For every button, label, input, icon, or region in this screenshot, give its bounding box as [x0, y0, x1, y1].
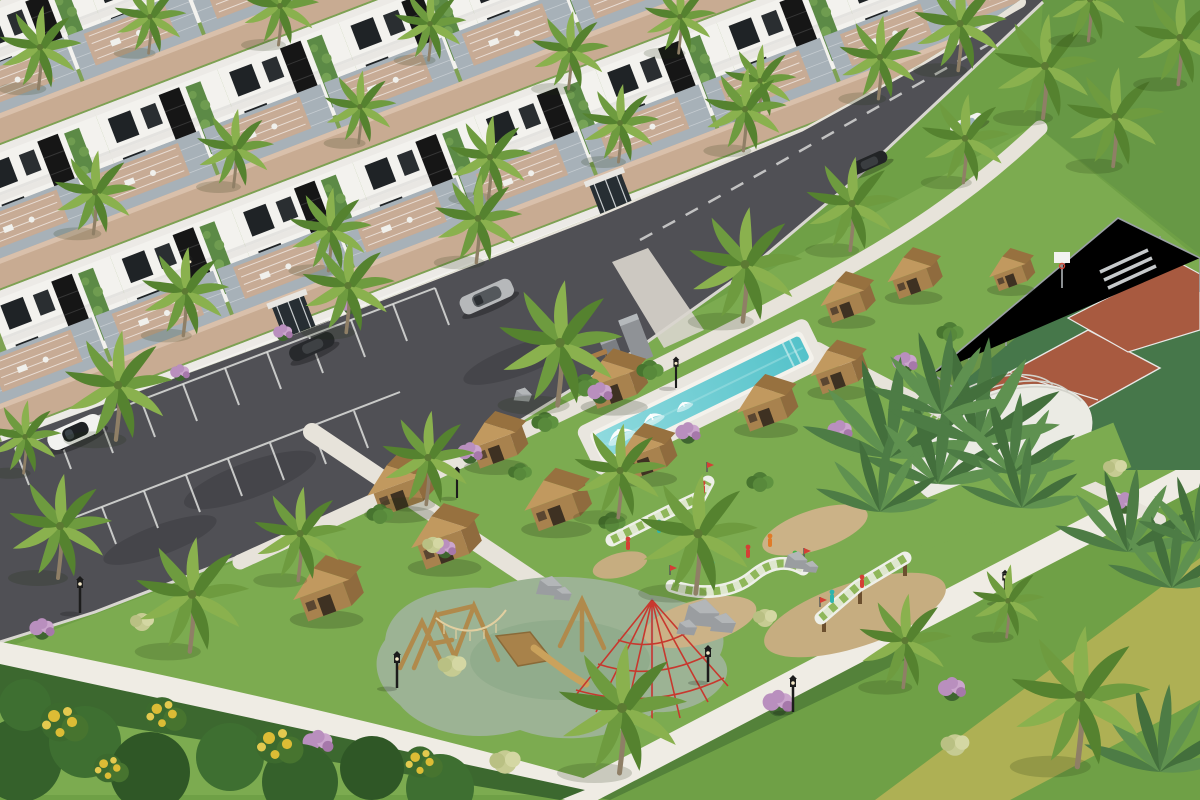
- render-canvas: White concrete walking paths through the…: [0, 0, 1200, 800]
- aerial-render: White concrete walking paths through the…: [0, 0, 1200, 800]
